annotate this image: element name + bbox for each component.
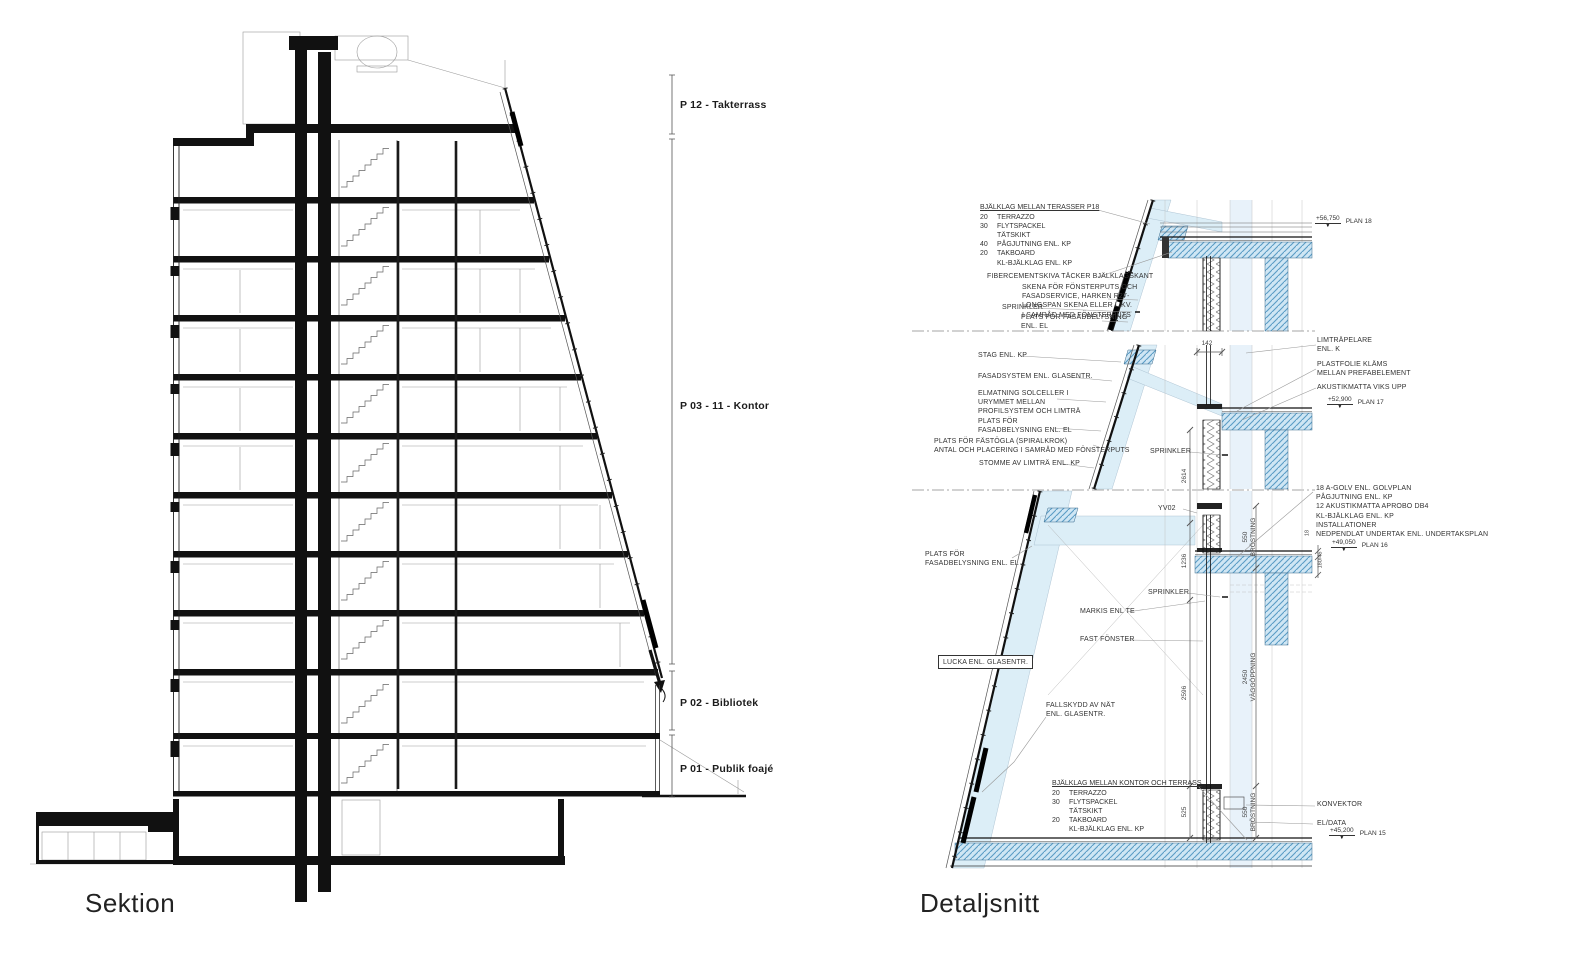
callout-golvblock: 18 A-GOLV ENL. GOLVPLAN PÅGJUTNING ENL. … (1316, 484, 1488, 539)
callout-fasadbelysning-1: PLATS FÖR FASADBELYSNING ENL. EL (1021, 313, 1127, 331)
plan-label: PLAN 16 (1362, 542, 1388, 552)
dim-2614: 2614 (1181, 469, 1189, 483)
level-triangle-icon: ▼ (1341, 548, 1346, 552)
section-level-label-bibliotek: P 02 - Bibliotek (680, 697, 758, 709)
callout-limtrapelar: LIMTRÄPELARE ENL. K (1317, 336, 1372, 354)
layer-text: TÄTSKIKT (997, 231, 1030, 240)
layer-text: TÄTSKIKT (1069, 807, 1102, 816)
layer-text: TAKBOARD (997, 249, 1035, 258)
layer-num: 20 (1052, 816, 1069, 825)
stairs (341, 149, 389, 784)
dim-18: 18 (1305, 530, 1312, 536)
layer-text: PÅGJUTNING ENL. KP (997, 240, 1071, 249)
level-marker-plan15: +45,200▼ PLAN 15 (1329, 827, 1386, 840)
left-facade (171, 146, 180, 791)
slab-layers-bottom: BJÄLKLAG MELLAN KONTOR OCH TERRASS 20TER… (1052, 779, 1202, 835)
layer-text: KL-BJÄLKLAG ENL. KP (997, 259, 1072, 268)
callout-markis: MARKIS ENL TE (1080, 607, 1135, 616)
section-title: Sektion (85, 888, 175, 919)
layer-num (1052, 807, 1069, 816)
slab-layers-top-title: BJÄLKLAG MELLAN TERASSER P18 (980, 203, 1099, 212)
level-marker-plan17: +52,900▼ PLAN 17 (1327, 396, 1384, 409)
callout-akustikmatta: AKUSTIKMATTA VIKS UPP (1317, 383, 1407, 392)
stair-shaft-walls (339, 140, 397, 793)
callout-fast-fonster: FAST FÖNSTER (1080, 635, 1135, 644)
plan-label: PLAN 17 (1358, 399, 1384, 409)
callout-fasadsystem: FASADSYSTEM ENL. GLASENTR. (978, 372, 1093, 381)
dim-1236: 1236 (1181, 554, 1189, 568)
layer-num (980, 231, 997, 240)
layer-text: FLYTSPACKEL (1069, 798, 1117, 807)
level-triangle-icon: ▼ (1337, 405, 1342, 409)
callout-stag: STAG ENL. KP (978, 351, 1027, 360)
dim-525: 525 (1181, 807, 1189, 818)
dim-vaggoppning: 2450 VÄGGÖPPNING (1242, 653, 1258, 702)
section-level-label-kontor: P 03 - 11 - Kontor (680, 400, 769, 412)
dim-2596: 2596 (1181, 686, 1189, 700)
layer-text: FLYTSPACKEL (997, 222, 1045, 231)
level-marker-plan18: +56,750▼ PLAN 18 (1315, 215, 1372, 228)
callout-fasadbelysning-3: PLATS FÖR FASADBELYSNING ENL. EL (925, 550, 1019, 568)
callout-fastogla: PLATS FÖR FÄSTÖGLA (SPIRALKROK) ANTAL OC… (934, 437, 1130, 455)
callout-sprinkler-3: SPRINKLER (1148, 588, 1189, 597)
slab-layers-top: BJÄLKLAG MELLAN TERASSER P18 20TERRAZZO … (980, 203, 1099, 268)
layer-num: 20 (980, 213, 997, 222)
dim-brostning-1: 550 BRÖSTNING (1242, 518, 1258, 557)
layer-num: 30 (1052, 798, 1069, 807)
dim-brostning-2: 550 BRÖSTNING (1242, 793, 1258, 832)
callout-lucka: LUCKA ENL. GLASENTR. (938, 655, 1033, 669)
architectural-sheet: P 12 - Takterrass P 03 - 11 - Kontor P 0… (0, 0, 1582, 974)
slab-layers-bottom-title: BJÄLKLAG MELLAN KONTOR OCH TERRASS (1052, 779, 1202, 788)
interior-columns (398, 141, 456, 789)
callout-fibercement: FIBERCEMENTSKIVA TÄCKER BJÄLKLAGSKANT (987, 272, 1153, 281)
layer-num: 20 (980, 249, 997, 258)
ground-and-basement (36, 796, 746, 865)
layer-num: 30 (980, 222, 997, 231)
section-interior-lines (30, 32, 744, 864)
elevator-core (289, 36, 338, 902)
layer-text: TERRAZZO (997, 213, 1035, 222)
callout-fasadbelysning-2: PLATS FÖR FASADBELYSNING ENL. EL (978, 417, 1072, 435)
callout-elmatning: ELMATNING SOLCELLER I URYMMET MELLAN PRO… (978, 389, 1081, 417)
callout-sprinkler-1: SPRINKLER (1002, 303, 1043, 312)
layer-num: 20 (1052, 789, 1069, 798)
dim-142: 142 (1202, 340, 1213, 348)
level-triangle-icon: ▼ (1339, 836, 1344, 840)
layer-num (980, 259, 997, 268)
callout-yv02: YV02 (1158, 504, 1176, 513)
layer-text: TERRAZZO (1069, 789, 1107, 798)
floor-slabs (173, 124, 660, 797)
callout-sprinkler-2: SPRINKLER (1150, 447, 1191, 456)
callout-stomme: STOMME AV LIMTRÄ ENL. KP (979, 459, 1080, 468)
callout-fallskydd: FALLSKYDD AV NÄT ENL. GLASENTR. (1046, 701, 1115, 719)
plan-label: PLAN 15 (1360, 830, 1386, 840)
level-marker-plan16: +49,050▼ PLAN 16 (1331, 539, 1388, 552)
layer-text: KL-BJÄLKLAG ENL. KP (1069, 825, 1144, 834)
section-level-ticks (669, 75, 675, 797)
section-drawing (30, 32, 746, 902)
callout-konvektor: KONVEKTOR (1317, 800, 1362, 809)
plan-label: PLAN 18 (1346, 218, 1372, 228)
detail-title: Detaljsnitt (920, 888, 1040, 919)
section-level-label-takterrass: P 12 - Takterrass (680, 99, 766, 111)
level-triangle-icon: ▼ (1325, 224, 1330, 228)
callout-plastfolie: PLASTFOLIE KLÄMS MELLAN PREFABELEMENT (1317, 360, 1411, 378)
layer-num: 40 (980, 240, 997, 249)
layer-num (1052, 825, 1069, 834)
dim-180-45: 180/45 (1318, 552, 1325, 569)
layer-text: TAKBOARD (1069, 816, 1107, 825)
section-level-label-foaje: P 01 - Publik foajé (680, 763, 773, 775)
